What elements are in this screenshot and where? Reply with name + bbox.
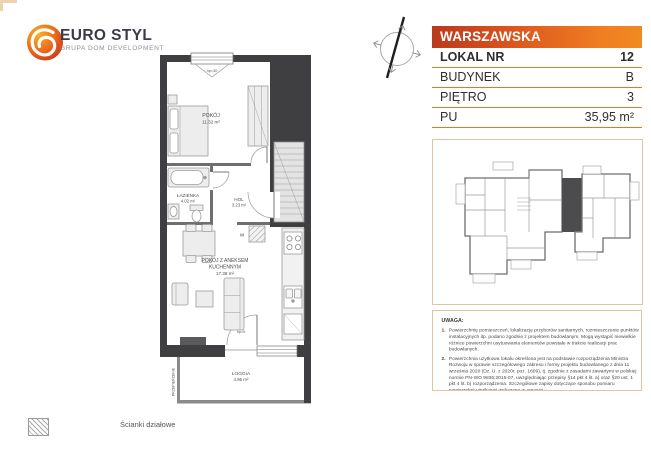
pillow (170, 109, 178, 129)
coffee-table (196, 291, 213, 307)
room-label-pokoj: POKÓJ (202, 112, 220, 119)
bedroom-window (191, 53, 233, 77)
entry-door-opening (270, 192, 280, 218)
room-area-lazienka: 4.02 m² (181, 199, 196, 204)
apartment-card-page: { "doc": { "brand": {"name": "EURO STYL"… (0, 0, 651, 460)
page-corner-mark (0, 0, 17, 11)
sofa (224, 278, 244, 330)
table-row-lokal-nr: LOKAL NR 12 (432, 48, 642, 68)
brand-name: EURO STYL (60, 27, 152, 45)
window-sill-label: hp=30 (207, 69, 218, 73)
note-number: 1. (441, 327, 448, 353)
washer-label: W (240, 233, 245, 238)
room-area-aneks: 17.38 m² (216, 271, 235, 276)
row-label: LOKAL NR (440, 48, 504, 67)
row-value: 12 (620, 48, 634, 67)
row-label: PU (440, 108, 457, 127)
apartment-floor-plan: POKÓJ 11.32 m² ŁAZIENKA 4.02 m² HOL 3.23… (153, 50, 317, 412)
pillow (170, 133, 178, 153)
note-number: 2. (441, 355, 448, 391)
unit-info-table: WARSZAWSKA LOKAL NR 12 BUDYNEK B PIĘTRO … (432, 26, 642, 128)
nightstand (168, 95, 177, 104)
armchair (172, 283, 188, 305)
room-area-pokoj: 11.32 m² (202, 120, 220, 125)
chair (186, 256, 196, 263)
row-value: 35,95 m² (585, 108, 634, 127)
notes-title: UWAGA: (441, 318, 640, 324)
building-floor-overview (433, 140, 642, 304)
notes-box: UWAGA: 1. Powierzchnię pomieszczeń, loka… (432, 310, 642, 391)
highlighted-unit (562, 178, 582, 232)
note-item: 1. Powierzchnię pomieszczeń, lokalizację… (441, 327, 640, 353)
toilet (192, 210, 201, 222)
note-item: 2. Powierzchnia użytkowa lokalu określon… (441, 355, 640, 391)
row-label: BUDYNEK (440, 68, 500, 87)
legend-label: Ścianki działowe (120, 420, 175, 429)
row-value: 3 (627, 88, 634, 107)
partition-walls-swatch (28, 418, 49, 436)
room-label-hol: HOL (234, 197, 244, 202)
room-area-loggia: 4.86 m² (234, 377, 249, 382)
partition-screen-label: PRZEPIERZENIE (172, 367, 176, 396)
street-header: WARSZAWSKA (432, 26, 642, 48)
row-value: B (626, 68, 634, 87)
note-text: Powierzchnia użytkowa lokalu określona j… (449, 355, 641, 391)
room-label-aneks-1: POKÓJ Z ANEKSEM (202, 257, 249, 264)
tv-cabinet (180, 337, 206, 345)
dining-table (183, 231, 215, 256)
north-compass-icon (370, 10, 428, 80)
room-label-aneks-2: KUCHENNYM (209, 265, 241, 271)
table-row-budynek: BUDYNEK B (432, 68, 642, 88)
stove (284, 232, 302, 254)
washing-machine (249, 226, 265, 242)
building-overview-box (432, 139, 643, 305)
room-area-hol: 3.23 m² (232, 203, 247, 208)
chair (186, 225, 196, 232)
loggia-window (257, 346, 297, 356)
room-label-lazienka: ŁAZIENKA (177, 193, 200, 198)
table-row-pu: PU 35,95 m² (432, 108, 642, 128)
row-label: PIĘTRO (440, 88, 487, 107)
note-text: Powierzchnię pomieszczeń, lokalizację pr… (449, 327, 641, 353)
loggia-sill-label: hp=0 (237, 330, 246, 334)
brand-tagline: GRUPA DOM DEVELOPMENT (60, 45, 164, 52)
table-row-pietro: PIĘTRO 3 (432, 88, 642, 108)
chair (202, 225, 212, 232)
